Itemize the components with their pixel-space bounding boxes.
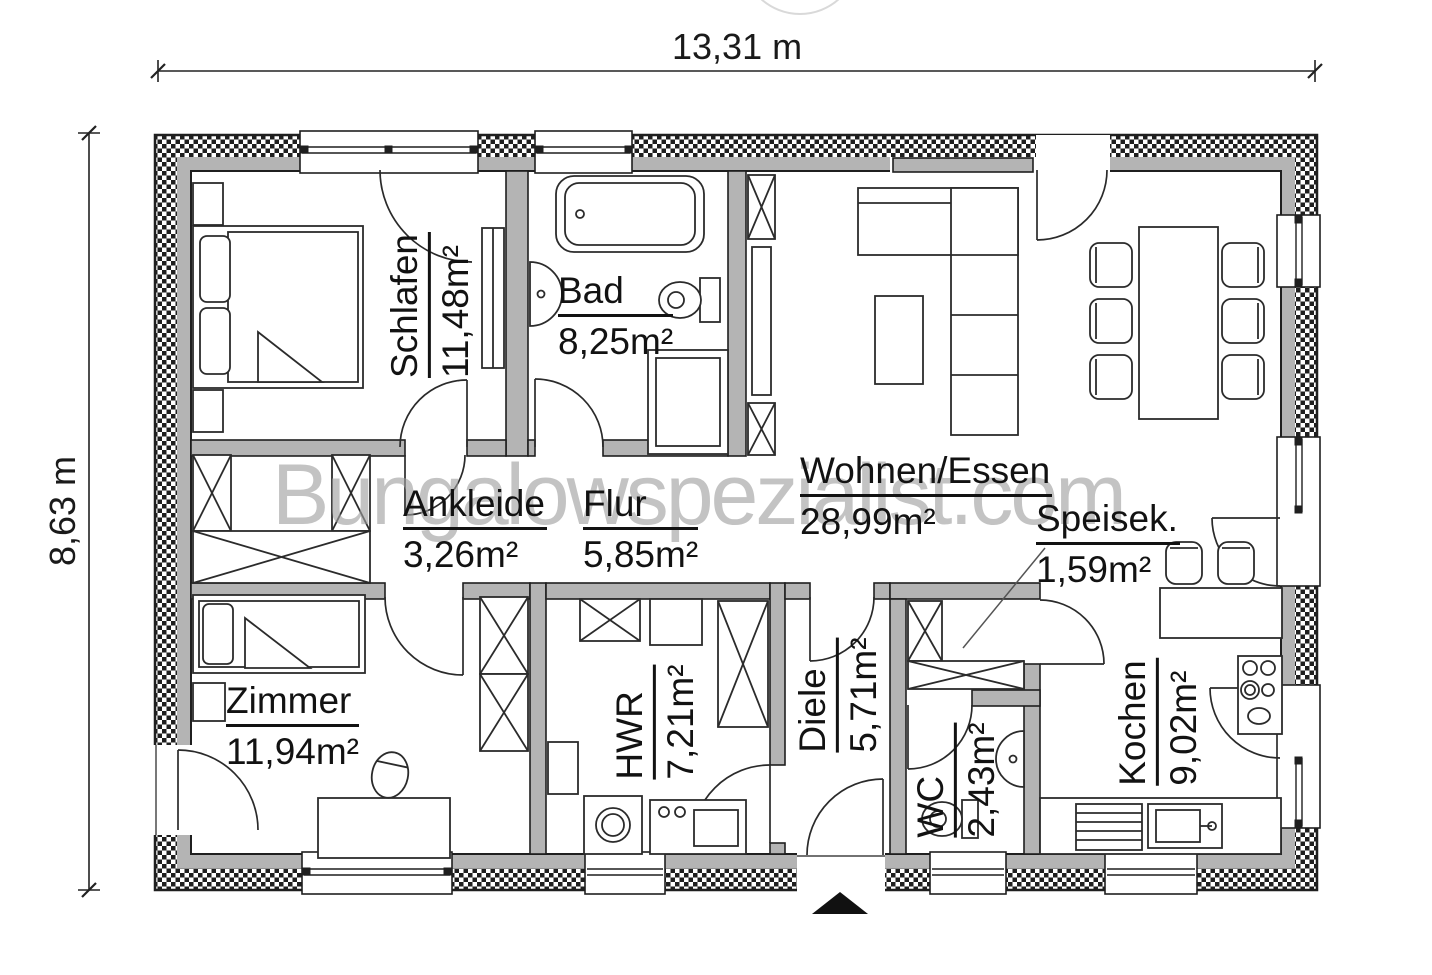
cabinet-icon xyxy=(548,742,578,794)
nightstand-icon xyxy=(193,390,223,432)
pantry-shelf-icon xyxy=(908,661,1024,689)
terrace-slider xyxy=(890,157,1036,172)
door-swing xyxy=(400,380,467,447)
room-name: Bad xyxy=(558,268,673,317)
room-name: Diele xyxy=(790,637,839,752)
room-name: Ankleide xyxy=(403,481,547,530)
shelf-icon xyxy=(752,247,771,395)
room-label-hwr: HWR 7,21m² xyxy=(607,664,703,779)
wardrobe-icon xyxy=(482,228,504,368)
wardrobe-icon xyxy=(480,597,528,674)
dining-table-icon xyxy=(1139,227,1218,419)
room-area: 11,94m² xyxy=(226,727,359,774)
door-swing xyxy=(1040,600,1104,664)
single-bed-icon xyxy=(193,595,365,673)
cabinet-icon xyxy=(718,601,768,727)
room-area: 5,85m² xyxy=(583,530,698,577)
window xyxy=(1277,215,1320,287)
room-label-speisek: Speisek. 1,59m² xyxy=(1036,496,1180,592)
room-label-wohnen: Wohnen/Essen 28,99m² xyxy=(800,448,1052,544)
coffee-table-icon xyxy=(875,296,923,384)
room-label-wc: WC 2,43m² xyxy=(908,722,1004,837)
room-name: Speisek. xyxy=(1036,496,1180,545)
chair-icon xyxy=(1222,299,1264,343)
window xyxy=(930,852,1006,894)
room-area: 9,02m² xyxy=(1159,658,1206,786)
nightstand-icon xyxy=(193,183,223,225)
room-area: 8,25m² xyxy=(558,317,673,364)
chair-icon xyxy=(1222,355,1264,399)
pantry-shelf-icon xyxy=(908,601,942,661)
room-label-ankleide: Ankleide 3,26m² xyxy=(403,481,547,577)
washing-machine-icon xyxy=(584,796,642,854)
room-name: WC xyxy=(908,722,957,837)
window xyxy=(1277,685,1320,828)
room-label-flur: Flur 5,85m² xyxy=(583,481,698,577)
wardrobe-icon xyxy=(193,455,231,531)
room-area: 7,21m² xyxy=(656,664,703,779)
watermark-circle xyxy=(742,0,858,14)
wardrobe-icon xyxy=(480,674,528,751)
door-swing xyxy=(807,779,883,855)
chair-icon xyxy=(1090,355,1132,399)
room-name: Kochen xyxy=(1110,658,1159,786)
window xyxy=(585,852,665,894)
room-name: Flur xyxy=(583,481,698,530)
entrance-opening xyxy=(797,853,885,893)
window xyxy=(535,131,632,173)
entrance-arrow-icon xyxy=(812,892,868,914)
cabinet-icon xyxy=(580,599,640,641)
shower-icon xyxy=(648,350,728,454)
chair-icon xyxy=(1222,243,1264,287)
window xyxy=(1105,852,1197,894)
room-area: 11,48m² xyxy=(431,232,478,378)
room-area: 5,71m² xyxy=(839,637,886,752)
dimension-height-label: 8,63 m xyxy=(42,456,84,566)
room-area: 2,43m² xyxy=(957,722,1004,837)
room-label-kochen: Kochen 9,02m² xyxy=(1110,658,1206,786)
room-label-bad: Bad 8,25m² xyxy=(558,268,673,364)
chair-icon xyxy=(1090,243,1132,287)
door-swing xyxy=(385,597,463,675)
cooktop-icon xyxy=(1238,656,1282,734)
room-area: 28,99m² xyxy=(800,497,1052,544)
window xyxy=(1277,437,1320,586)
room-name: Schlafen xyxy=(382,232,431,378)
room-label-zimmer: Zimmer 11,94m² xyxy=(226,678,359,774)
double-bed-icon xyxy=(193,226,363,388)
door-swing xyxy=(535,379,603,447)
room-name: Wohnen/Essen xyxy=(800,448,1052,497)
dimension-width-label: 13,31 m xyxy=(672,26,802,68)
room-area: 1,59m² xyxy=(1036,545,1180,592)
door-opening xyxy=(1036,135,1110,172)
kitchen-sink-icon xyxy=(1148,804,1222,848)
stool-icon xyxy=(368,749,413,801)
nightstand-icon xyxy=(193,683,225,721)
dishwasher-icon xyxy=(1076,804,1142,850)
floorplan-page: Bungalowspezialist.com 13,31 m 8,63 m Sc… xyxy=(0,0,1432,975)
room-area: 3,26m² xyxy=(403,530,547,577)
bar-counter-icon xyxy=(1160,588,1282,638)
cabinet-icon xyxy=(650,599,702,645)
door-swing xyxy=(1037,170,1107,240)
bathtub-icon xyxy=(556,176,704,252)
door-opening xyxy=(152,745,194,835)
room-name: HWR xyxy=(607,664,656,779)
chair-icon xyxy=(1090,299,1132,343)
window xyxy=(300,131,478,173)
room-label-diele: Diele 5,71m² xyxy=(790,637,886,752)
bar-stool-icon xyxy=(1218,542,1254,584)
laundry-sink-icon xyxy=(650,800,746,854)
room-name: Zimmer xyxy=(226,678,359,727)
cabinet-icon xyxy=(748,175,775,239)
desk-icon xyxy=(318,798,450,858)
room-label-schlafen: Schlafen 11,48m² xyxy=(382,232,478,378)
